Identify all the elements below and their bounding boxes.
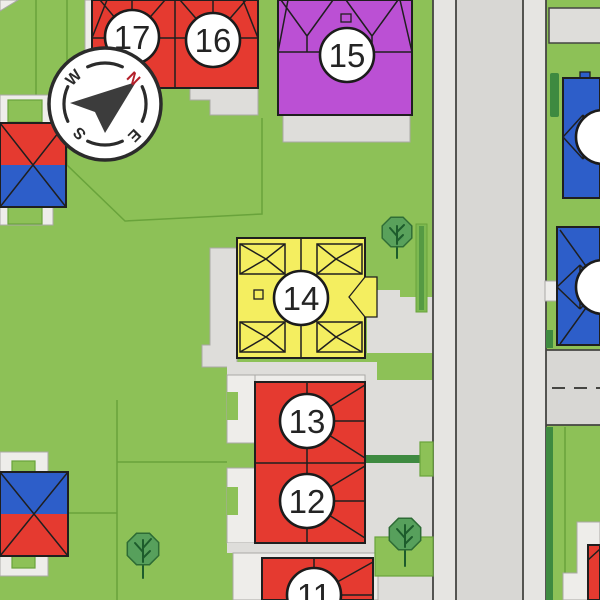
duplex-blue-half[interactable] — [0, 472, 68, 514]
lot-13-pad-strip — [255, 375, 365, 382]
neighbor-house-right-upper[interactable] — [563, 72, 600, 198]
neighbor-house-left-upper[interactable] — [0, 123, 66, 207]
lot-13-badge[interactable]: 13 — [280, 394, 334, 448]
green-patch — [420, 442, 433, 476]
compass: N E S W — [49, 48, 161, 160]
porch — [545, 281, 557, 301]
lot-14-entry-path — [377, 290, 400, 319]
garden-inset — [12, 556, 35, 568]
lot-16-number: 16 — [195, 22, 232, 59]
garden-inset — [8, 206, 42, 224]
hedge — [546, 330, 553, 348]
lot-15-patio — [283, 115, 410, 142]
lot-11-number: 11 — [297, 577, 331, 600]
sidewalk-east — [523, 0, 546, 600]
lot-12-number: 12 — [289, 483, 326, 520]
chimney — [341, 14, 351, 22]
lot-14-number: 14 — [283, 280, 320, 317]
lot-13-12-building[interactable]: 13 12 — [255, 382, 365, 543]
duplex-blue-half[interactable] — [0, 165, 66, 207]
garden-notch — [227, 487, 238, 515]
road-vertical — [456, 0, 523, 600]
map-canvas: 17 16 15 — [0, 0, 600, 600]
hedge — [546, 427, 553, 600]
lot-14-badge[interactable]: 14 — [274, 271, 328, 325]
lot-15-number: 15 — [329, 37, 366, 74]
red-roof[interactable] — [588, 545, 600, 600]
duplex-red-half[interactable] — [0, 514, 68, 556]
lot-13-number: 13 — [289, 403, 326, 440]
driveway-band-northeast — [549, 8, 600, 43]
garden-notch — [227, 392, 238, 420]
neighbor-house-left-lower[interactable] — [0, 472, 68, 556]
sidewalk-west — [433, 0, 456, 600]
hedge-light-core — [419, 226, 424, 310]
site-plan-map: 17 16 15 — [0, 0, 600, 600]
lot-15-building[interactable]: 15 — [278, 0, 412, 115]
lot-15-badge[interactable]: 15 — [320, 28, 374, 82]
hedge — [550, 73, 559, 117]
lot-11-building[interactable]: 11 — [262, 558, 373, 600]
roof-window — [254, 290, 263, 299]
lot-12-badge[interactable]: 12 — [280, 474, 334, 528]
garden-inset — [8, 100, 42, 122]
lot-16-badge[interactable]: 16 — [186, 13, 240, 67]
neighbor-house-bottom-right[interactable] — [588, 545, 600, 600]
lot-14-building[interactable]: 14 — [237, 238, 377, 358]
